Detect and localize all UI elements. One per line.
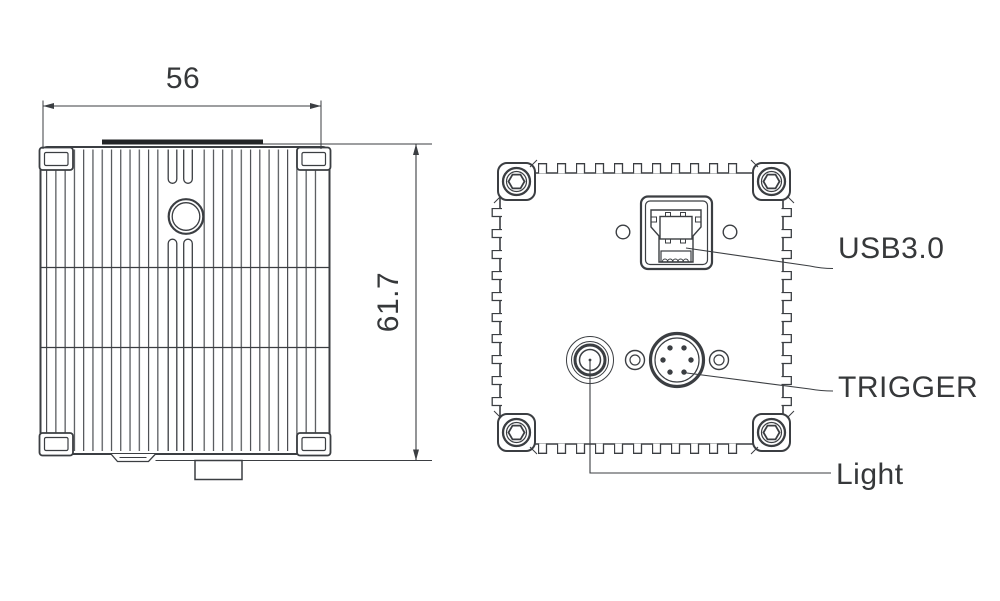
clip-bottom-left [40, 433, 74, 456]
trigger-pin [681, 345, 686, 350]
arrowhead-top [413, 144, 419, 155]
clip-top-left [40, 148, 74, 171]
trigger-pin [660, 357, 665, 362]
heatsink-teeth-right [782, 208, 793, 413]
dimension-height-value: 61.7 [372, 272, 405, 332]
heatsink-teeth-left [492, 208, 503, 413]
dimension-width: 56 [43, 62, 321, 149]
dimension-width-value: 56 [166, 62, 200, 95]
light-label: Light [836, 458, 904, 491]
heatsink-teeth-top [538, 163, 747, 174]
trigger-pin [667, 345, 672, 350]
hex-screw-top-right [751, 160, 794, 203]
hex-screw-bottom-left [494, 411, 537, 454]
heatsink-teeth-bottom [538, 444, 747, 455]
bottom-connector-block [195, 461, 242, 480]
top-surface-bar [102, 140, 263, 145]
arrowhead-right [310, 103, 321, 109]
trigger-pin [688, 357, 693, 362]
arrowhead-left [43, 103, 54, 109]
light-center-pin [589, 359, 592, 362]
drawing-canvas: 56 61.7 [0, 0, 1000, 601]
hex-screw-bottom-right [751, 411, 794, 454]
usb3-port [641, 197, 712, 270]
mount-hole [169, 199, 204, 234]
trigger-label: TRIGGER [838, 371, 978, 404]
camera-dimension-drawing: 56 61.7 [0, 0, 1000, 601]
back-view [492, 160, 795, 454]
clip-top-right [297, 148, 331, 171]
trigger-pin [667, 369, 672, 374]
mount-hole-outer [169, 199, 204, 234]
usb-cavity-outline [651, 210, 701, 262]
usb-label: USB3.0 [838, 232, 944, 265]
clip-bottom-right [297, 433, 331, 456]
arrowhead-bottom [413, 450, 419, 461]
hex-screw-top-left [494, 160, 537, 203]
